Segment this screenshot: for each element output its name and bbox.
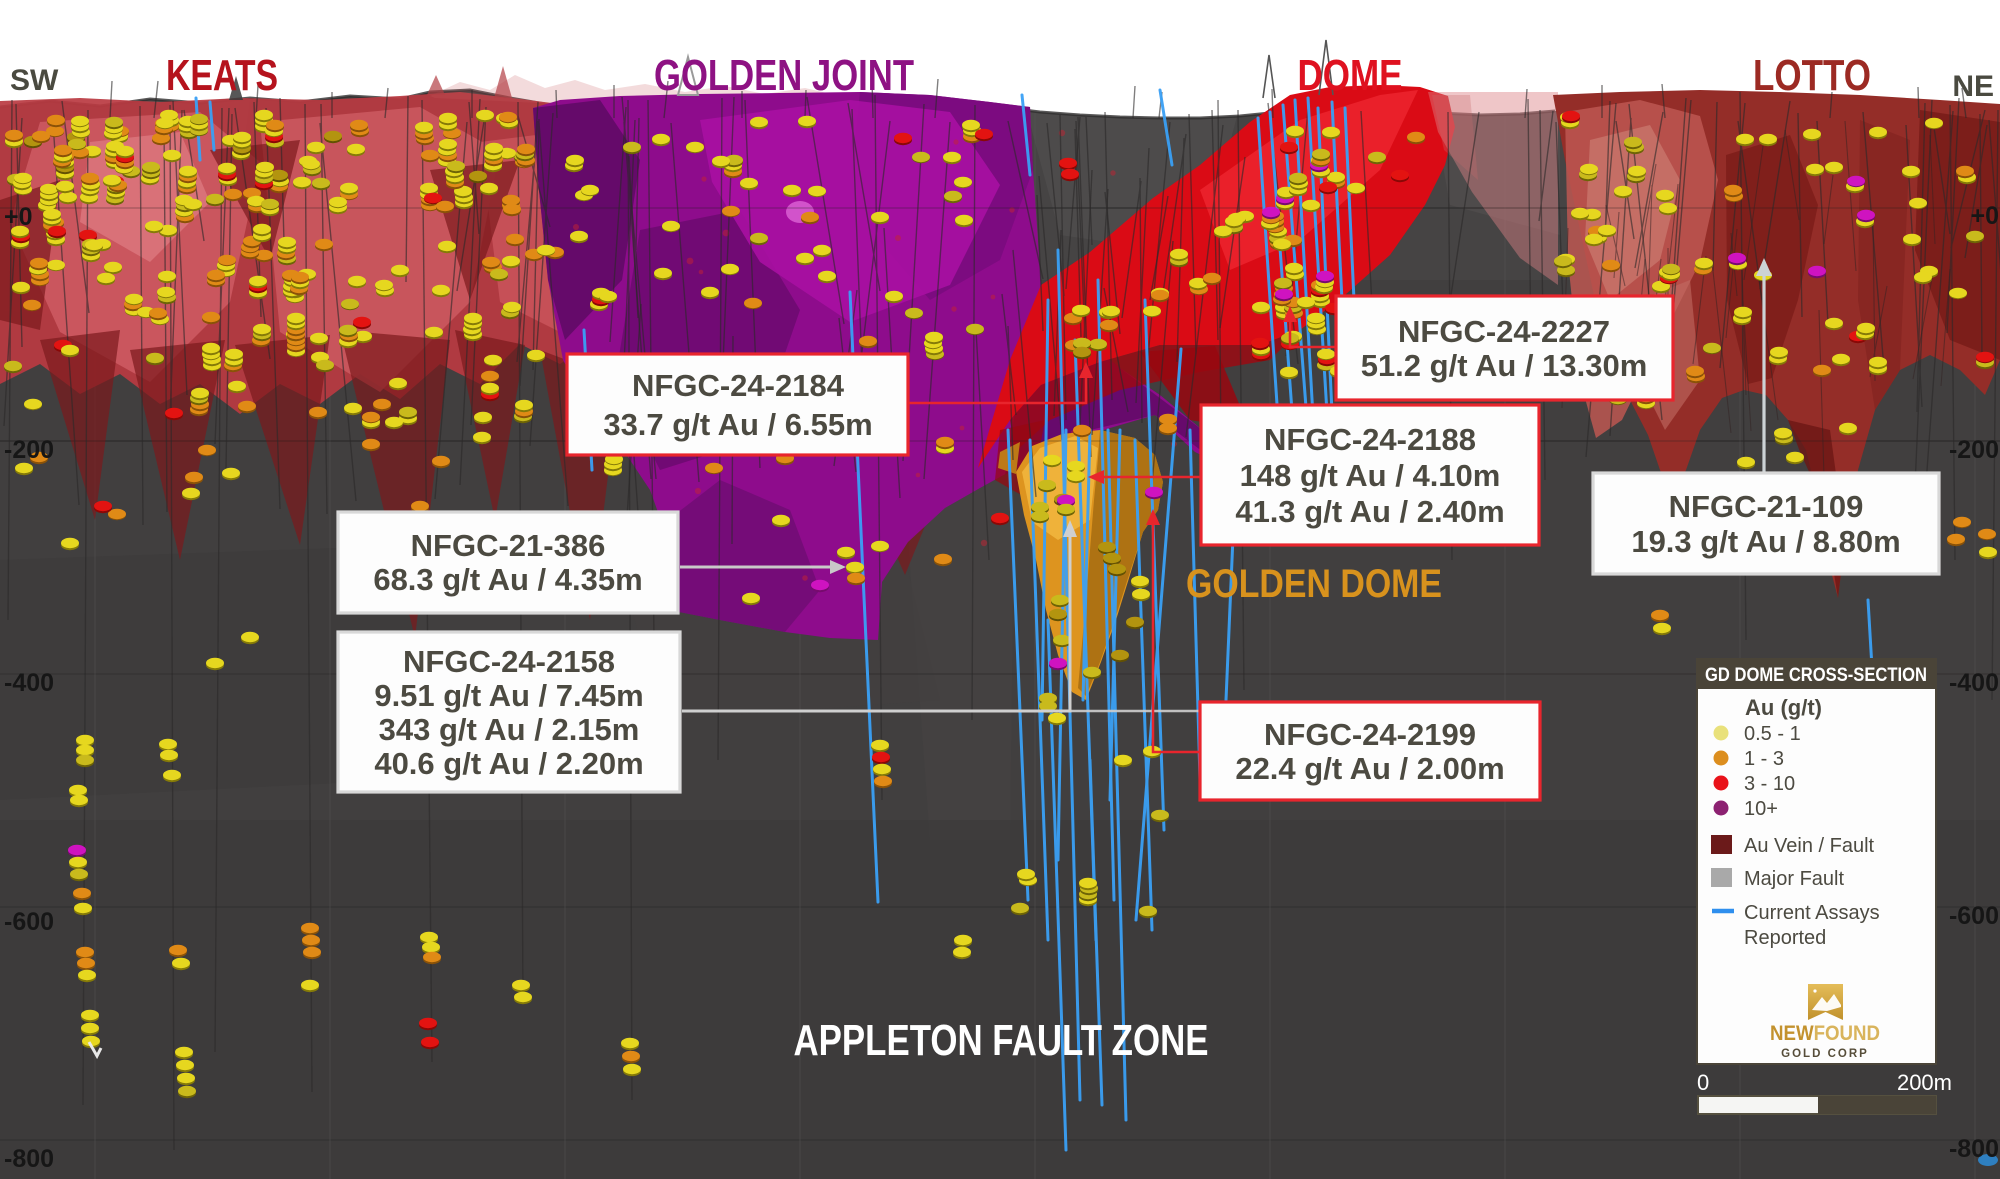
svg-text:Au Vein / Fault: Au Vein / Fault <box>1744 835 1875 857</box>
svg-text:Au (g/t): Au (g/t) <box>1745 695 1822 720</box>
svg-text:GOLDEN DOME: GOLDEN DOME <box>1186 562 1442 606</box>
svg-text:-600: -600 <box>1949 902 1999 930</box>
svg-text:68.3 g/t Au / 4.35m: 68.3 g/t Au / 4.35m <box>373 562 642 597</box>
svg-text:NFGC-24-2199: NFGC-24-2199 <box>1264 717 1476 752</box>
svg-text:Current Assays: Current Assays <box>1744 902 1880 924</box>
svg-text:40.6 g/t Au / 2.20m: 40.6 g/t Au / 2.20m <box>374 746 643 781</box>
svg-text:-600: -600 <box>4 908 54 936</box>
svg-text:Major Fault: Major Fault <box>1744 868 1844 890</box>
svg-text:NEWFOUND: NEWFOUND <box>1770 1022 1880 1045</box>
svg-text:NFGC-24-2188: NFGC-24-2188 <box>1264 422 1476 457</box>
svg-text:NFGC-24-2227: NFGC-24-2227 <box>1398 314 1610 349</box>
svg-text:0.5 - 1: 0.5 - 1 <box>1744 723 1801 745</box>
svg-text:GOLD CORP: GOLD CORP <box>1781 1048 1869 1060</box>
svg-text:9.51 g/t Au / 7.45m: 9.51 g/t Au / 7.45m <box>374 678 643 713</box>
svg-text:22.4 g/t Au / 2.00m: 22.4 g/t Au / 2.00m <box>1235 751 1504 786</box>
svg-text:DOME: DOME <box>1298 51 1403 100</box>
svg-text:NFGC-24-2184: NFGC-24-2184 <box>632 368 845 403</box>
svg-text:LOTTO: LOTTO <box>1753 51 1871 100</box>
svg-text:-200: -200 <box>1949 436 1999 464</box>
svg-text:SW: SW <box>10 64 59 97</box>
svg-text:200m: 200m <box>1897 1070 1952 1095</box>
svg-text:10+: 10+ <box>1744 798 1778 820</box>
svg-text:GOLDEN JOINT: GOLDEN JOINT <box>654 51 914 100</box>
svg-text:-400: -400 <box>4 669 54 697</box>
svg-text:-800: -800 <box>1949 1135 1999 1163</box>
svg-text:19.3 g/t Au / 8.80m: 19.3 g/t Au / 8.80m <box>1631 524 1900 559</box>
svg-text:NFGC-24-2158: NFGC-24-2158 <box>403 644 615 679</box>
svg-text:33.7 g/t Au / 6.55m: 33.7 g/t Au / 6.55m <box>603 407 872 442</box>
svg-text:148 g/t Au / 4.10m: 148 g/t Au / 4.10m <box>1240 458 1501 493</box>
svg-text:343 g/t Au / 2.15m: 343 g/t Au / 2.15m <box>379 712 640 747</box>
svg-text:+0: +0 <box>4 203 33 231</box>
svg-text:NFGC-21-386: NFGC-21-386 <box>411 528 606 563</box>
svg-text:-200: -200 <box>4 436 54 464</box>
svg-text:1 - 3: 1 - 3 <box>1744 748 1784 770</box>
svg-text:APPLETON FAULT ZONE: APPLETON FAULT ZONE <box>794 1016 1209 1065</box>
svg-text:KEATS: KEATS <box>166 51 278 100</box>
svg-text:-800: -800 <box>4 1145 54 1173</box>
svg-text:3 - 10: 3 - 10 <box>1744 773 1795 795</box>
svg-text:-400: -400 <box>1949 669 1999 697</box>
svg-text:51.2 g/t Au / 13.30m: 51.2 g/t Au / 13.30m <box>1361 348 1648 383</box>
svg-text:0: 0 <box>1697 1070 1709 1095</box>
svg-text:+0: +0 <box>1970 202 1999 230</box>
svg-text:NE: NE <box>1952 70 1994 103</box>
svg-text:NFGC-21-109: NFGC-21-109 <box>1669 489 1864 524</box>
svg-text:Reported: Reported <box>1744 927 1826 949</box>
svg-text:41.3 g/t Au / 2.40m: 41.3 g/t Au / 2.40m <box>1235 494 1504 529</box>
svg-text:GD DOME CROSS-SECTION: GD DOME CROSS-SECTION <box>1705 665 1927 686</box>
